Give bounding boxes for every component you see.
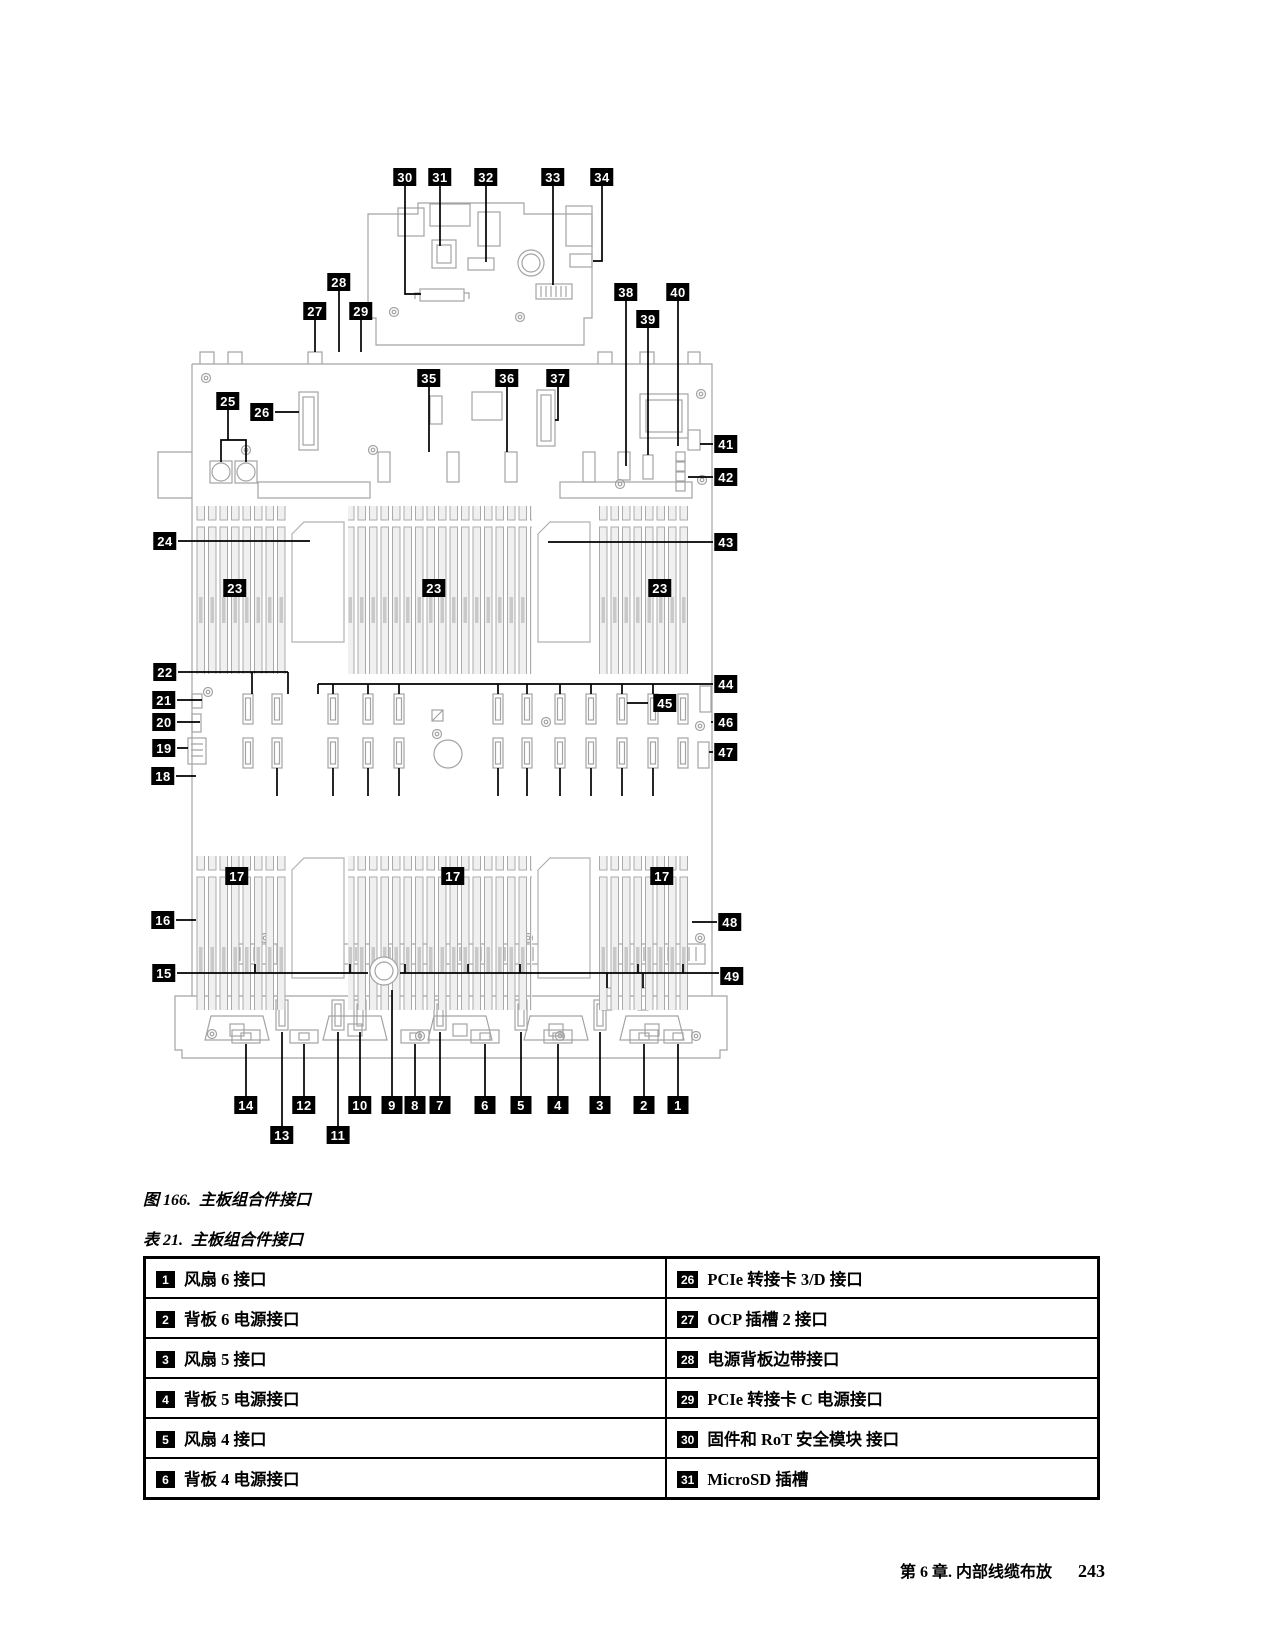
motherboard-line-art [130, 140, 820, 1160]
callout-number-badge: 6 [156, 1471, 175, 1488]
callout-number-badge: 26 [677, 1271, 698, 1288]
callout-5: 5 [511, 1096, 532, 1114]
callout-16: 16 [151, 911, 174, 929]
callout-38: 38 [614, 283, 637, 301]
chapter-title: 第 6 章. 内部线缆布放 [900, 1564, 1052, 1581]
callout-12: 12 [292, 1096, 315, 1114]
callout-23: 23 [648, 579, 671, 597]
callout-42: 42 [714, 468, 737, 486]
table-cell: 5风扇 4 接口 [145, 1418, 667, 1458]
callout-number-badge: 28 [677, 1351, 698, 1368]
table-row: 2背板 6 电源接口27OCP 插槽 2 接口 [145, 1298, 1099, 1338]
callout-number-badge: 2 [156, 1311, 175, 1328]
table-cell: 4背板 5 电源接口 [145, 1378, 667, 1418]
callout-48: 48 [718, 913, 741, 931]
callout-20: 20 [152, 713, 175, 731]
table-caption-prefix: 表 21. [143, 1232, 183, 1249]
table-caption-text: 主板组合件接口 [191, 1232, 303, 1249]
callout-41: 41 [714, 435, 737, 453]
table-cell: 28电源背板边带接口 [666, 1338, 1099, 1378]
callout-22: 22 [153, 663, 176, 681]
callout-27: 27 [303, 302, 326, 320]
callout-36: 36 [495, 369, 518, 387]
table-row: 4背板 5 电源接口29PCIe 转接卡 C 电源接口 [145, 1378, 1099, 1418]
page-number: 243 [1078, 1561, 1105, 1581]
callout-26: 26 [250, 403, 273, 421]
callout-15: 15 [152, 964, 175, 982]
table-cell: 27OCP 插槽 2 接口 [666, 1298, 1099, 1338]
callout-3: 3 [590, 1096, 611, 1114]
table-caption: 表 21.主板组合件接口 [143, 1226, 303, 1250]
callout-18: 18 [151, 767, 174, 785]
table-row: 3风扇 5 接口28电源背板边带接口 [145, 1338, 1099, 1378]
table-cell: 26PCIe 转接卡 3/D 接口 [666, 1258, 1099, 1299]
table-cell: 3风扇 5 接口 [145, 1338, 667, 1378]
table-row: 6背板 4 电源接口31MicroSD 插槽 [145, 1458, 1099, 1499]
figure-caption-prefix: 图 166. [143, 1192, 191, 1209]
table-cell: 29PCIe 转接卡 C 电源接口 [666, 1378, 1099, 1418]
table-row: 1风扇 6 接口26PCIe 转接卡 3/D 接口 [145, 1258, 1099, 1299]
figure-caption-text: 主板组合件接口 [199, 1192, 311, 1209]
callout-1: 1 [668, 1096, 689, 1114]
figure-caption: 图 166.主板组合件接口 [143, 1186, 311, 1210]
callout-35: 35 [417, 369, 440, 387]
callout-number-badge: 27 [677, 1311, 698, 1328]
callout-number-badge: 4 [156, 1391, 175, 1408]
callout-30: 30 [393, 168, 416, 186]
table-cell: 6背板 4 电源接口 [145, 1458, 667, 1499]
callout-25: 25 [216, 392, 239, 410]
connector-table: 1风扇 6 接口26PCIe 转接卡 3/D 接口2背板 6 电源接口27OCP… [143, 1256, 1100, 1500]
callout-43: 43 [714, 533, 737, 551]
table-cell: 30固件和 RoT 安全模块 接口 [666, 1418, 1099, 1458]
table-cell: 1风扇 6 接口 [145, 1258, 667, 1299]
cmos-battery [370, 957, 398, 985]
table-cell: 2背板 6 电源接口 [145, 1298, 667, 1338]
callout-45: 45 [653, 694, 676, 712]
callout-23: 23 [422, 579, 445, 597]
callout-11: 11 [327, 1126, 350, 1144]
callout-24: 24 [153, 532, 176, 550]
callout-39: 39 [636, 310, 659, 328]
callout-23: 23 [223, 579, 246, 597]
callout-13: 13 [270, 1126, 293, 1144]
callout-32: 32 [474, 168, 497, 186]
callout-17: 17 [650, 867, 673, 885]
callout-7: 7 [430, 1096, 451, 1114]
callout-29: 29 [349, 302, 372, 320]
callout-28: 28 [327, 273, 350, 291]
callout-31: 31 [428, 168, 451, 186]
callout-44: 44 [714, 675, 737, 693]
callout-number-badge: 1 [156, 1271, 175, 1288]
callout-33: 33 [541, 168, 564, 186]
callout-9: 9 [382, 1096, 403, 1114]
callout-8: 8 [405, 1096, 426, 1114]
callout-4: 4 [548, 1096, 569, 1114]
callout-19: 19 [152, 739, 175, 757]
callout-47: 47 [714, 743, 737, 761]
callout-number-badge: 30 [677, 1431, 698, 1448]
callout-21: 21 [152, 691, 175, 709]
callout-14: 14 [234, 1096, 257, 1114]
callout-37: 37 [546, 369, 569, 387]
table-row: 5风扇 4 接口30固件和 RoT 安全模块 接口 [145, 1418, 1099, 1458]
manual-page: { "figure": { "caption_prefix": "图 166."… [0, 0, 1275, 1650]
callout-number-badge: 5 [156, 1431, 175, 1448]
callout-34: 34 [590, 168, 613, 186]
callout-2: 2 [634, 1096, 655, 1114]
motherboard-diagram: 3031323334282729384039252635363741422443… [0, 0, 1275, 1160]
callout-number-badge: 29 [677, 1391, 698, 1408]
connector-table-body: 1风扇 6 接口26PCIe 转接卡 3/D 接口2背板 6 电源接口27OCP… [145, 1258, 1099, 1499]
page-footer: 第 6 章. 内部线缆布放243 [900, 1558, 1105, 1582]
table-cell: 31MicroSD 插槽 [666, 1458, 1099, 1499]
callout-49: 49 [720, 967, 743, 985]
callout-40: 40 [666, 283, 689, 301]
callout-number-badge: 3 [156, 1351, 175, 1368]
callout-number-badge: 31 [677, 1471, 698, 1488]
callout-17: 17 [225, 867, 248, 885]
callout-17: 17 [441, 867, 464, 885]
callout-46: 46 [714, 713, 737, 731]
callout-10: 10 [348, 1096, 371, 1114]
callout-6: 6 [475, 1096, 496, 1114]
